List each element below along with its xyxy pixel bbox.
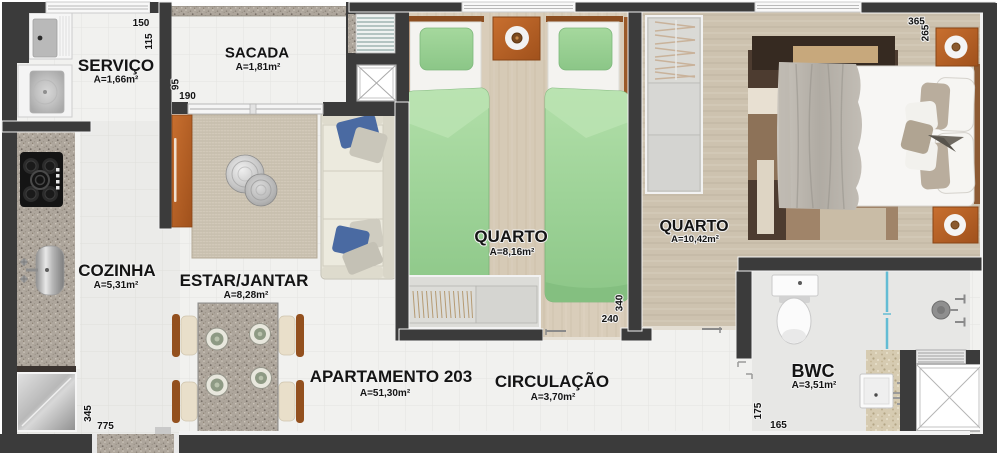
svg-text:190: 190 xyxy=(179,91,196,102)
svg-text:QUARTO: QUARTO xyxy=(659,218,728,235)
svg-text:QUARTO: QUARTO xyxy=(474,227,547,246)
svg-text:COZINHA: COZINHA xyxy=(78,261,155,280)
svg-text:ESTAR/JANTAR: ESTAR/JANTAR xyxy=(180,271,309,290)
svg-text:240: 240 xyxy=(602,314,619,325)
svg-text:345: 345 xyxy=(83,405,94,422)
svg-text:95: 95 xyxy=(171,79,182,91)
svg-text:A=1,66m²: A=1,66m² xyxy=(94,75,139,86)
svg-text:APARTAMENTO 203: APARTAMENTO 203 xyxy=(310,367,472,386)
svg-text:A=8,28m²: A=8,28m² xyxy=(224,290,269,301)
svg-text:CIRCULAÇÃO: CIRCULAÇÃO xyxy=(495,371,609,391)
svg-text:775: 775 xyxy=(97,421,114,432)
svg-text:SACADA: SACADA xyxy=(225,45,289,62)
svg-text:340: 340 xyxy=(615,294,626,311)
svg-text:265: 265 xyxy=(921,24,932,41)
svg-text:A=51,30m²: A=51,30m² xyxy=(360,388,411,399)
svg-text:SERVIÇO: SERVIÇO xyxy=(78,56,154,75)
svg-text:150: 150 xyxy=(133,18,150,29)
svg-text:175: 175 xyxy=(753,402,764,419)
svg-text:A=3,51m²: A=3,51m² xyxy=(792,380,837,391)
svg-text:A=10,42m²: A=10,42m² xyxy=(671,234,719,245)
svg-text:A=8,16m²: A=8,16m² xyxy=(490,247,535,258)
svg-text:165: 165 xyxy=(770,420,787,431)
svg-text:A=1,81m²: A=1,81m² xyxy=(236,62,281,73)
svg-text:115: 115 xyxy=(144,33,155,50)
svg-text:BWC: BWC xyxy=(792,361,835,381)
svg-text:A=5,31m²: A=5,31m² xyxy=(94,280,139,291)
svg-text:A=3,70m²: A=3,70m² xyxy=(531,392,576,403)
